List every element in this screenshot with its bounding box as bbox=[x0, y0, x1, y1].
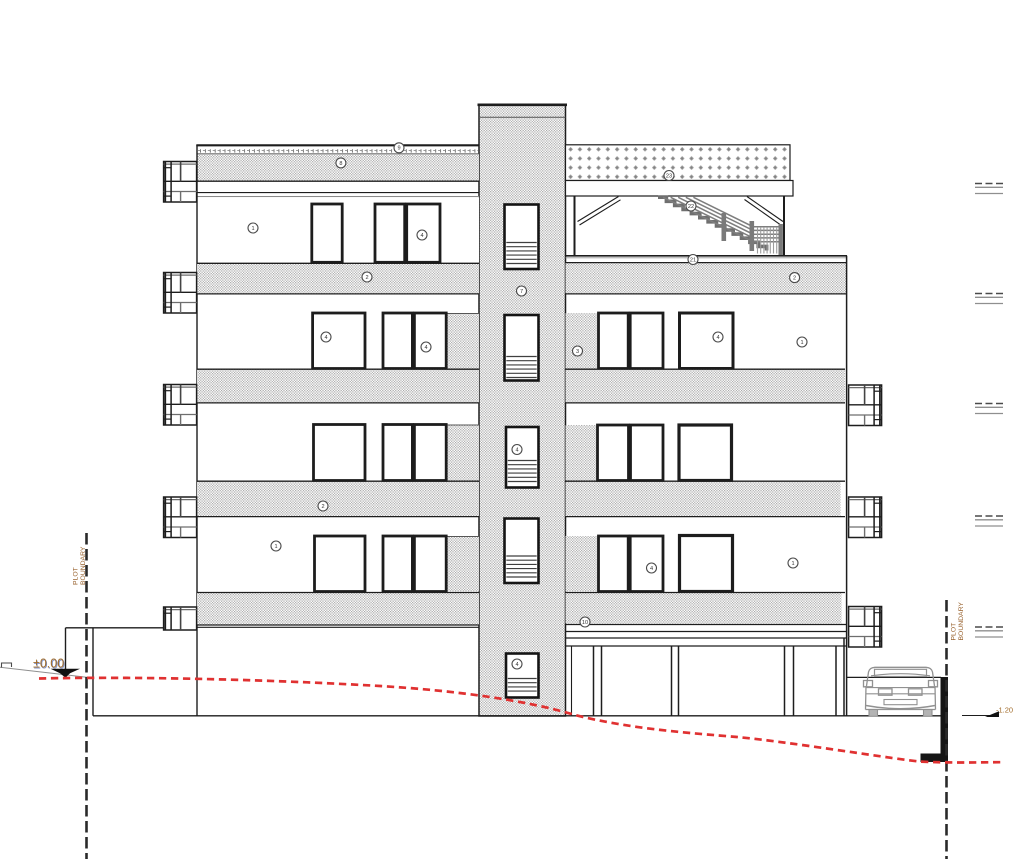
svg-text:23: 23 bbox=[666, 173, 672, 179]
svg-text:2: 2 bbox=[793, 276, 796, 282]
svg-text:BOUNDARY: BOUNDARY bbox=[80, 546, 87, 585]
svg-text:4: 4 bbox=[515, 447, 518, 453]
svg-text:-1.20: -1.20 bbox=[996, 706, 1013, 715]
svg-text:4: 4 bbox=[515, 662, 518, 668]
svg-text:7: 7 bbox=[520, 289, 523, 295]
svg-text:2: 2 bbox=[321, 504, 324, 510]
svg-text:4: 4 bbox=[424, 345, 427, 351]
svg-text:2: 2 bbox=[365, 275, 368, 281]
svg-text:21: 21 bbox=[690, 257, 696, 263]
svg-text:10: 10 bbox=[582, 620, 588, 626]
svg-text:22: 22 bbox=[688, 204, 694, 210]
svg-text:PLOT: PLOT bbox=[951, 623, 958, 641]
svg-text:1: 1 bbox=[251, 226, 254, 232]
svg-text:4: 4 bbox=[420, 233, 423, 239]
svg-text:4: 4 bbox=[716, 335, 719, 341]
svg-text:BOUNDARY: BOUNDARY bbox=[958, 602, 965, 641]
svg-text:4: 4 bbox=[324, 335, 327, 341]
svg-text:±0.00: ±0.00 bbox=[33, 657, 64, 671]
svg-text:9: 9 bbox=[397, 146, 400, 152]
svg-text:8: 8 bbox=[339, 161, 342, 167]
svg-text:1: 1 bbox=[791, 561, 794, 567]
svg-text:4: 4 bbox=[650, 566, 653, 572]
svg-text:1: 1 bbox=[274, 544, 277, 550]
svg-text:3: 3 bbox=[576, 349, 579, 355]
svg-text:PLOT: PLOT bbox=[73, 567, 80, 585]
svg-text:1: 1 bbox=[800, 340, 803, 346]
